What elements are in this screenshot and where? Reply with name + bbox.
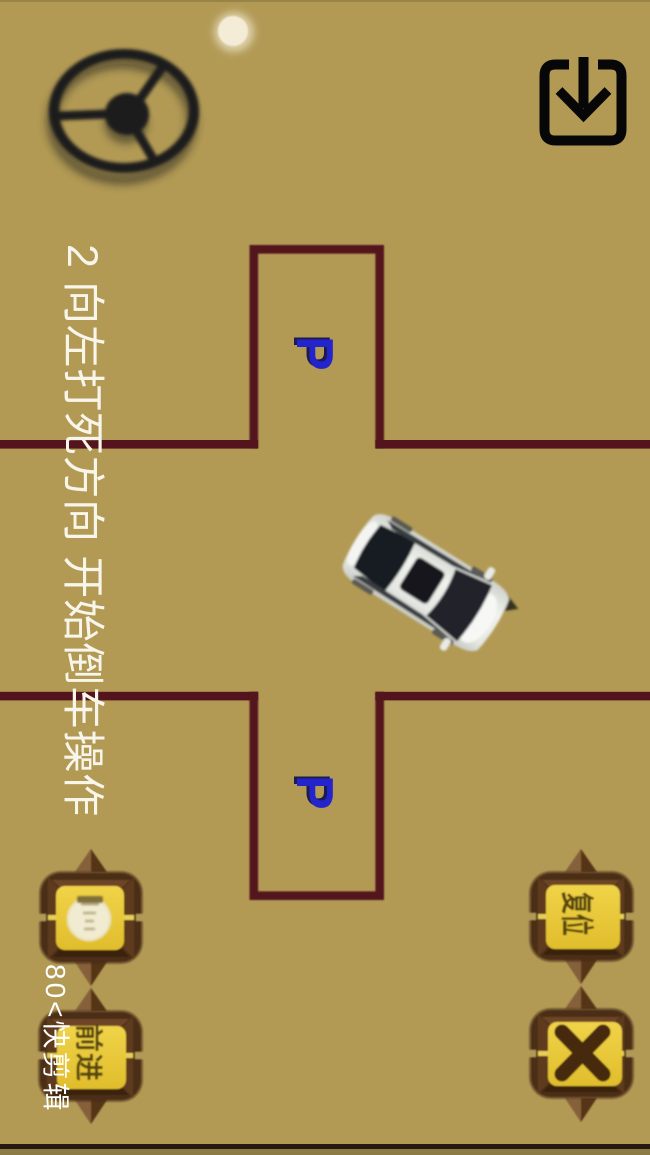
svg-text:2 向左打死方向 开始倒车操作: 2 向左打死方向 开始倒车操作 bbox=[58, 244, 106, 817]
svg-text:P: P bbox=[285, 775, 343, 810]
svg-text:前进: 前进 bbox=[73, 1024, 105, 1082]
svg-text:P: P bbox=[285, 336, 343, 371]
svg-text:80<快剪辑: 80<快剪辑 bbox=[40, 964, 71, 1114]
svg-text:复位: 复位 bbox=[558, 892, 596, 936]
